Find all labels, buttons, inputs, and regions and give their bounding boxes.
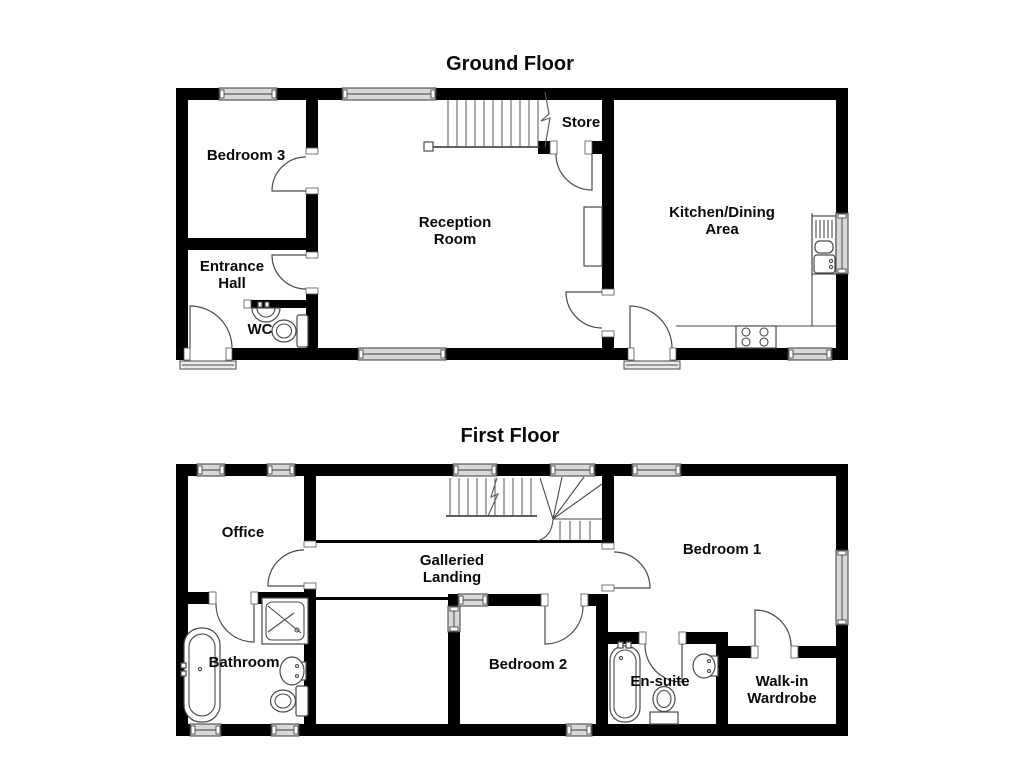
wardrobe-door-swing [755, 610, 791, 646]
door-jamb [550, 141, 557, 154]
door-jamb [541, 594, 548, 606]
bathroom-door-swing [216, 604, 254, 642]
kitchen-fixtures [676, 213, 836, 348]
window [836, 213, 848, 274]
door-jamb [251, 592, 258, 604]
bedroom2-door-swing [545, 606, 583, 644]
wall [716, 646, 751, 658]
door-jamb [751, 646, 758, 658]
door-jamb [226, 348, 232, 360]
room-label-ensuite: En-suite [630, 673, 689, 690]
door-jamb [306, 188, 318, 194]
window [566, 724, 592, 736]
room-label-reception-1: Reception [419, 214, 492, 231]
door-jamb [639, 632, 646, 644]
sink-bowl [814, 255, 835, 273]
first-stairs-icon [446, 477, 602, 541]
wc-partition-wall [244, 300, 306, 308]
tap [181, 663, 186, 668]
ground-thresholds [180, 361, 680, 369]
stair-treads [560, 521, 590, 540]
window [358, 348, 446, 360]
wall [602, 476, 614, 543]
window [267, 464, 295, 476]
wall [304, 476, 316, 541]
window [271, 724, 299, 736]
door-jamb [244, 300, 251, 308]
stair-curve [537, 519, 553, 541]
door-jamb [679, 632, 686, 644]
wall [596, 594, 608, 724]
room-label-landing-2: Landing [423, 569, 481, 586]
kitchen-exterior-door-swing [630, 306, 672, 348]
window [190, 724, 221, 736]
door-jamb [602, 585, 614, 591]
window [453, 464, 497, 476]
window [448, 606, 460, 632]
door-jamb [670, 348, 676, 360]
landing-balustrade [316, 540, 602, 543]
stair-break-line [541, 92, 550, 147]
wall [602, 337, 614, 348]
window [342, 88, 436, 100]
sink-icon [693, 654, 715, 678]
room-label-reception-2: Room [434, 231, 477, 248]
stair-treads [448, 100, 538, 147]
room-label-wc: WC [248, 321, 273, 338]
window [632, 464, 681, 476]
door-jamb [602, 543, 614, 549]
door-jamb [306, 252, 318, 258]
landing-edge-line [316, 597, 448, 600]
wall [176, 88, 188, 360]
toilet-icon [271, 690, 296, 712]
door-jamb [628, 348, 634, 360]
window [197, 464, 225, 476]
wall [188, 238, 306, 250]
room-label-bedroom3: Bedroom 3 [207, 147, 285, 164]
wall [686, 632, 716, 644]
toilet-cistern [296, 686, 308, 716]
door-jamb [184, 348, 190, 360]
window [219, 88, 277, 100]
tap [181, 671, 186, 676]
room-label-kitchen-2: Area [705, 221, 739, 238]
sink-bowl [815, 241, 833, 253]
window [788, 348, 832, 360]
toilet-icon [272, 320, 296, 342]
kitchen-door-opening [628, 348, 676, 360]
door-jamb [306, 148, 318, 154]
door-jamb [304, 583, 316, 589]
wall [448, 632, 460, 724]
stair-break-line [488, 478, 498, 516]
floor-plan-drawing: Ground Floor [0, 0, 1024, 768]
room-label-bathroom: Bathroom [209, 654, 280, 671]
hob-icon [736, 326, 776, 348]
reception-kitchen-door-swing [566, 292, 602, 328]
tap [626, 642, 631, 648]
room-label-kitchen-1: Kitchen/Dining [669, 204, 775, 221]
wall [306, 194, 318, 252]
hall-door-swing [272, 255, 306, 289]
room-label-store: Store [562, 114, 600, 131]
wall [306, 100, 318, 148]
wall [176, 348, 848, 360]
window [836, 550, 848, 625]
front-door-opening [184, 348, 232, 360]
room-label-office: Office [222, 524, 265, 541]
door-jamb [304, 541, 316, 547]
room-label-bedroom2: Bedroom 2 [489, 656, 567, 673]
stair-newel [424, 142, 433, 151]
wall [716, 632, 728, 724]
window [550, 464, 595, 476]
room-label-wardrobe-2: Wardrobe [747, 690, 816, 707]
door-jamb [791, 646, 798, 658]
chimney-breast [584, 207, 602, 266]
ground-outer-walls [176, 88, 848, 360]
window [458, 594, 488, 606]
sink-icon [252, 308, 280, 322]
tap [265, 302, 269, 307]
toilet-cistern [297, 315, 308, 347]
room-label-entrance-1: Entrance [200, 258, 264, 275]
wall [602, 100, 614, 289]
office-door-swing [268, 550, 304, 586]
toilet-cistern [650, 712, 678, 724]
wall [798, 646, 836, 658]
room-label-bedroom1: Bedroom 1 [683, 541, 761, 558]
door-jamb [209, 592, 216, 604]
floorplan-page: Ground Floor [0, 0, 1024, 768]
tap [258, 302, 262, 307]
tap [618, 642, 623, 648]
wall [188, 592, 209, 604]
store-wall [592, 141, 604, 154]
ground-floor-title: Ground Floor [446, 53, 574, 75]
store-door-swing [556, 154, 592, 190]
sink-icon [280, 657, 304, 685]
door-jamb [602, 331, 614, 337]
shower-icon [262, 598, 308, 644]
bedroom1-door-swing [614, 552, 650, 588]
door-jamb [585, 141, 592, 154]
room-label-landing-1: Galleried [420, 552, 484, 569]
room-label-wardrobe-1: Walk-in [756, 673, 809, 690]
room-label-entrance-2: Hall [218, 275, 246, 292]
front-door-swing [190, 306, 232, 348]
door-jamb [581, 594, 588, 606]
ground-stairs-icon [424, 92, 550, 151]
door-jamb [602, 289, 614, 295]
first-floor-title: First Floor [461, 425, 560, 447]
door-jamb [306, 288, 318, 294]
